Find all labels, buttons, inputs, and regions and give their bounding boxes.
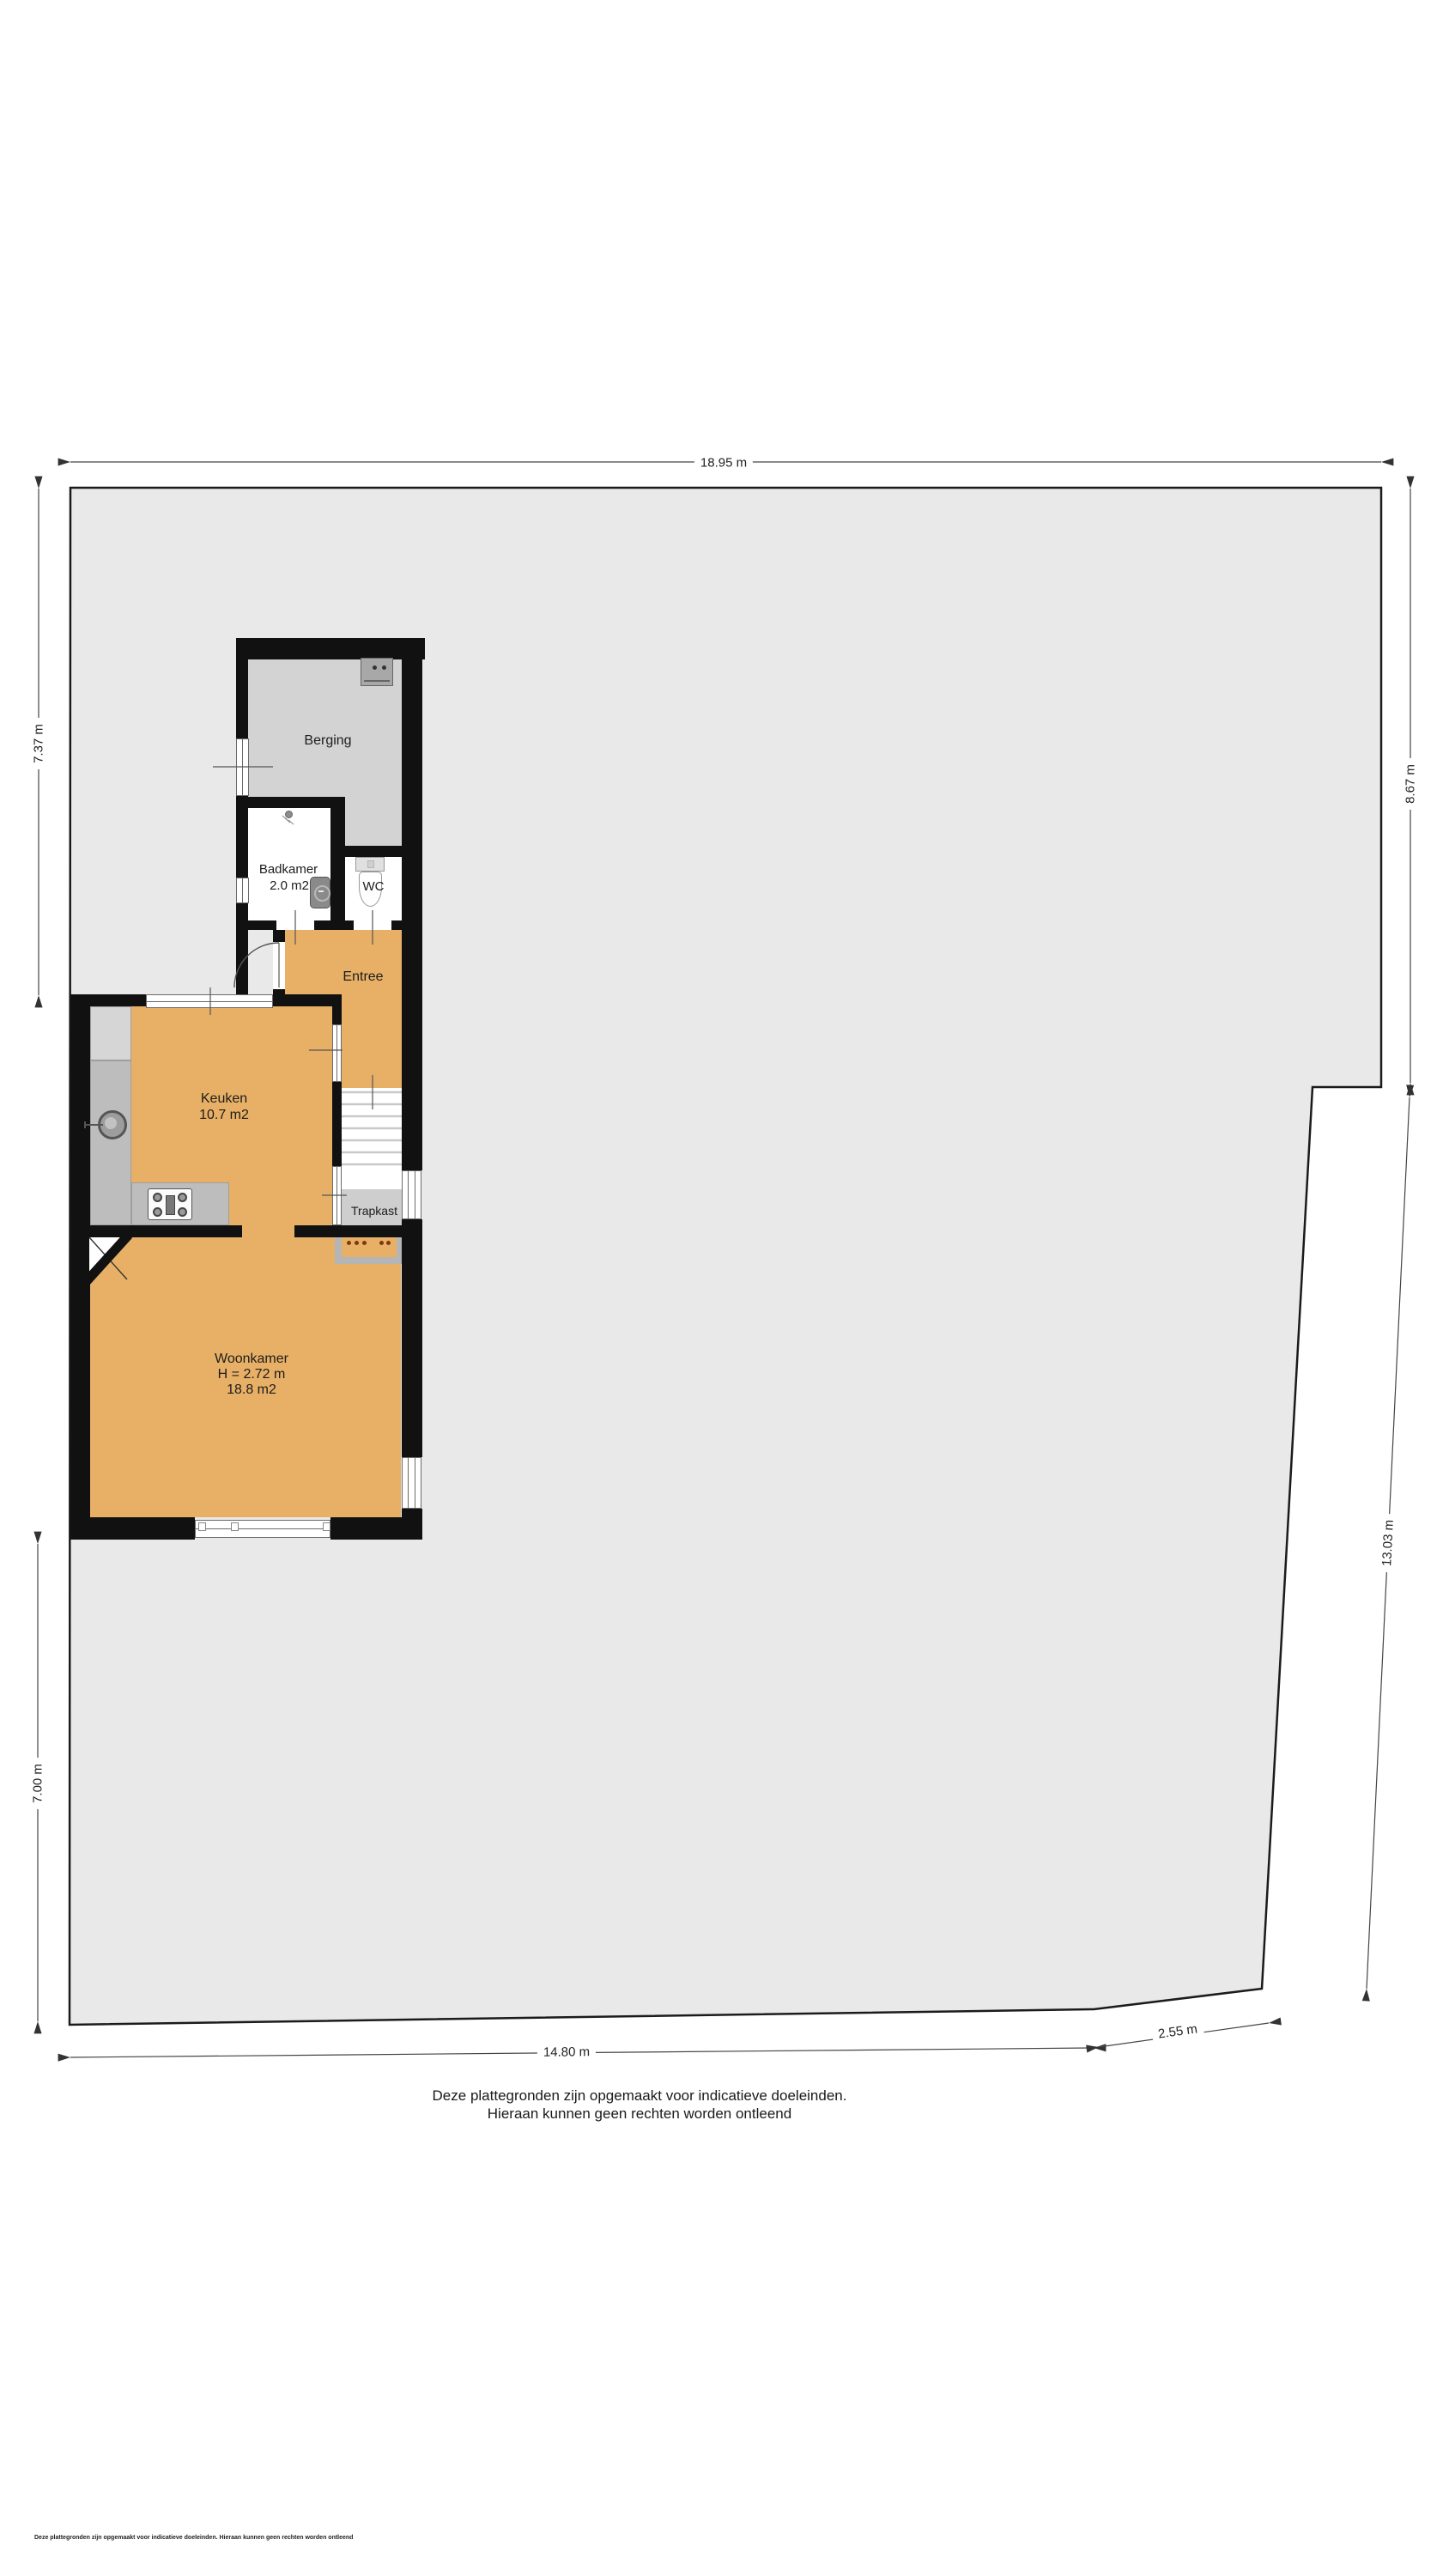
disclaimer-line2: Hieraan kunnen geen rechten worden ontle… (433, 2105, 847, 2123)
badkamer-area: 2.0 m2 (270, 878, 309, 894)
trapkast-label: Trapkast (351, 1203, 397, 1218)
dim-right-upper: 8.67 m (1404, 758, 1418, 810)
dim-bottom: 14.80 m (537, 2044, 596, 2060)
entree-label: Entree (343, 969, 383, 985)
keuken-label: Keuken (201, 1091, 247, 1107)
wc-label: WC (363, 879, 385, 895)
dim-left-upper: 7.37 m (32, 718, 46, 769)
stairs-icon (342, 1092, 402, 1164)
door-swing-icon (234, 943, 279, 987)
corner-hatch (87, 1235, 129, 1281)
woonkamer-label: Woonkamer (215, 1352, 288, 1367)
dim-right-lower: 13.03 m (1379, 1514, 1397, 1573)
dim-left-lower: 7.00 m (31, 1758, 45, 1809)
dim-top: 18.95 m (694, 456, 753, 471)
detail-overlay-layer (0, 0, 1449, 2576)
disclaimer-line1: Deze plattegronden zijn opgemaakt voor i… (433, 2087, 847, 2105)
footer-note: Deze plattegronden zijn opgemaakt voor i… (34, 2535, 353, 2541)
keuken-area: 10.7 m2 (199, 1108, 249, 1123)
woonkamer-area: 18.8 m2 (227, 1382, 276, 1398)
woonkamer-height: H = 2.72 m (218, 1367, 286, 1382)
disclaimer-text: Deze plattegronden zijn opgemaakt voor i… (433, 2087, 847, 2123)
floorplan-page: Berging Badkamer 2.0 m2 WC Entree Keuken… (0, 0, 1449, 2576)
berging-label: Berging (304, 733, 351, 749)
badkamer-label: Badkamer (259, 862, 318, 878)
